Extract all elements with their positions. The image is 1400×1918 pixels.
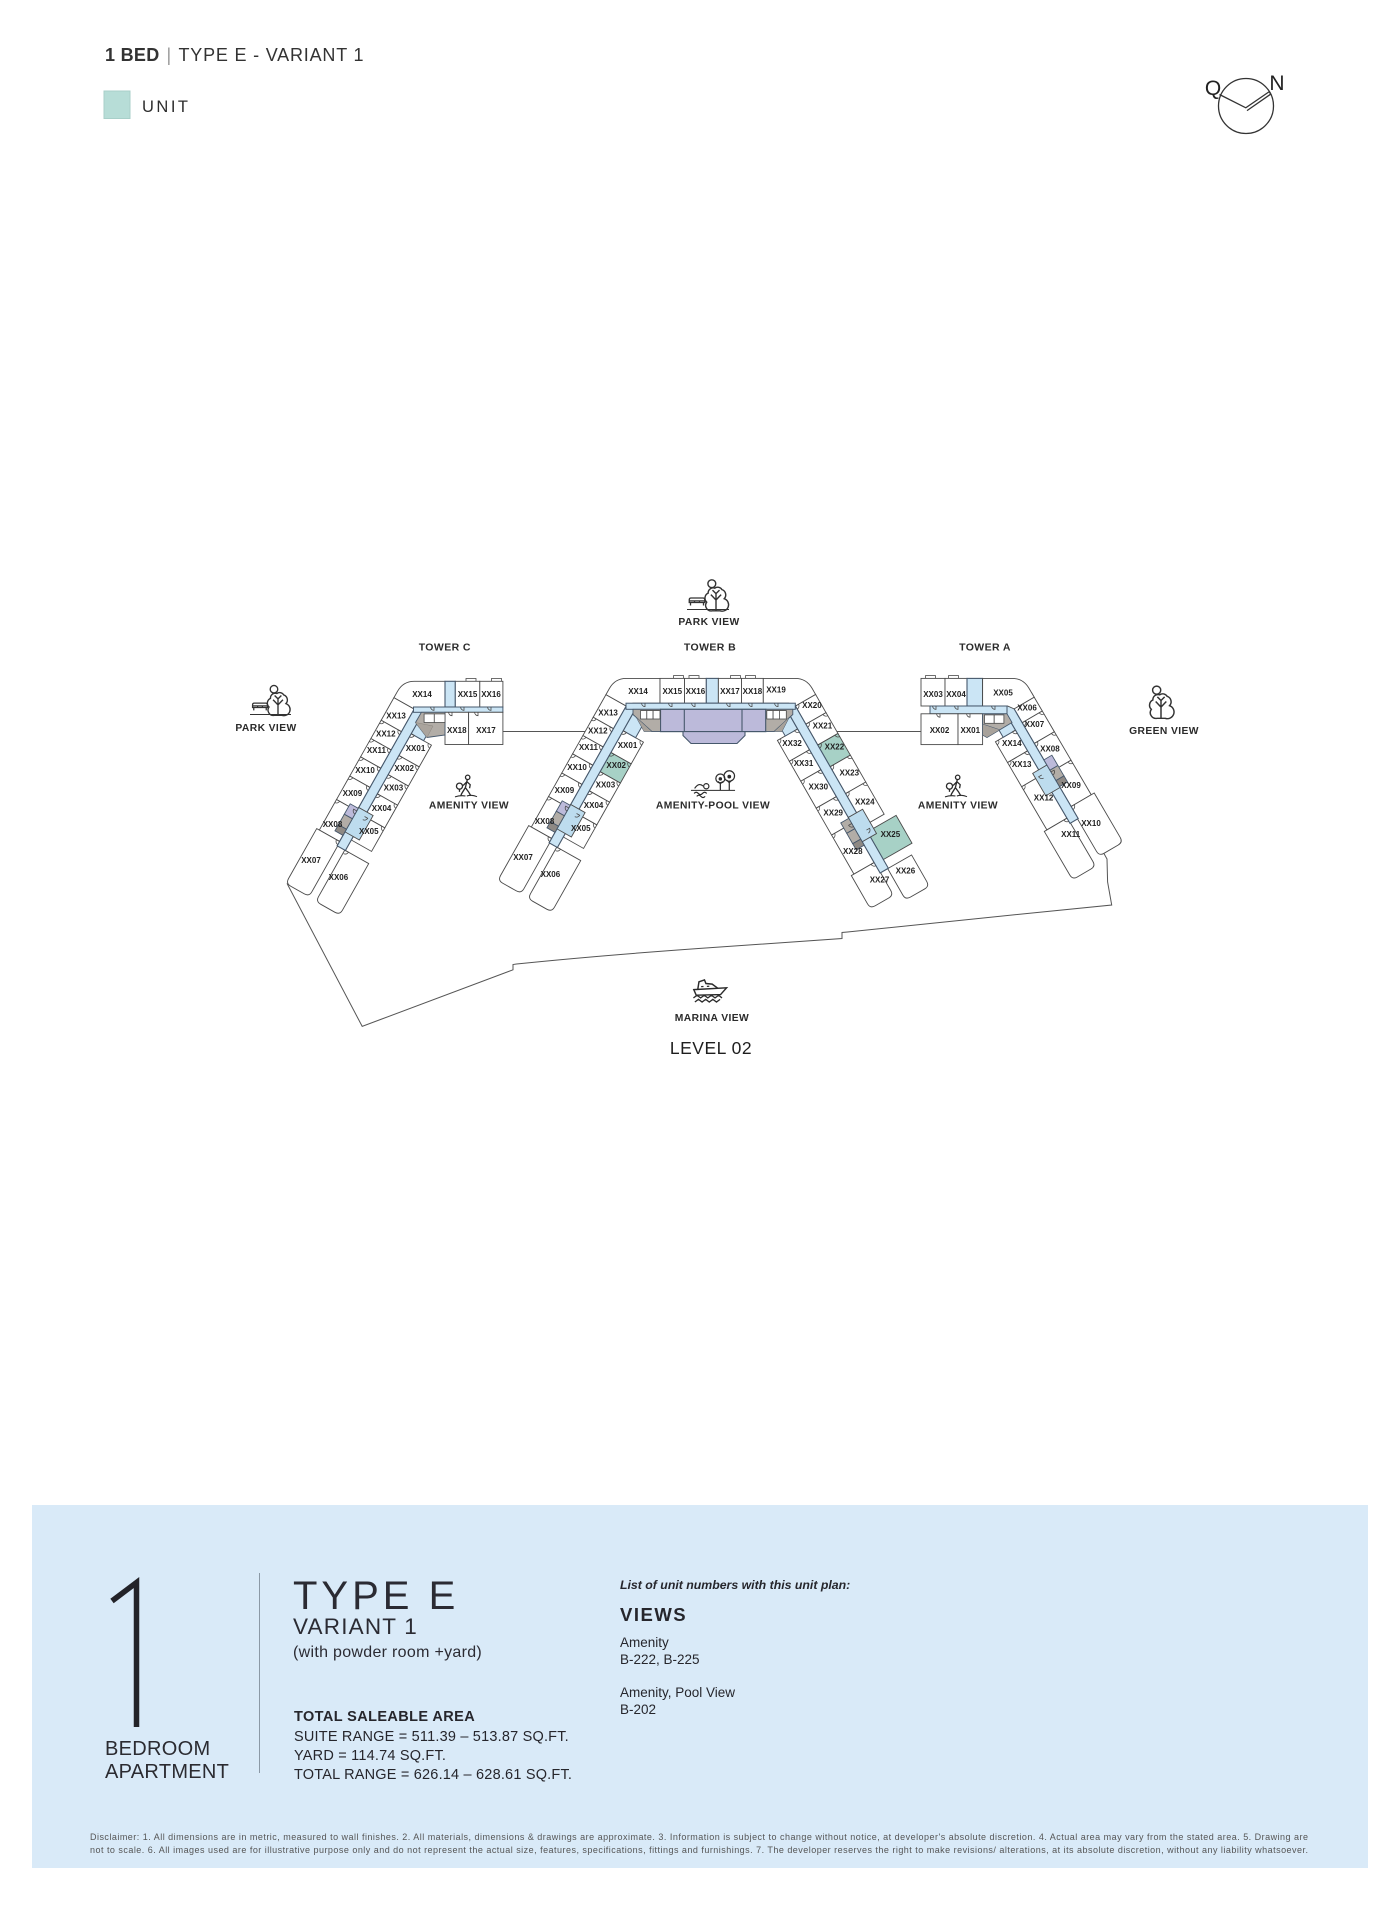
svg-text:XX32: XX32 [782,739,802,748]
svg-text:XX20: XX20 [802,701,822,710]
svg-text:AMENITY VIEW: AMENITY VIEW [918,801,998,812]
svg-text:VARIANT 1: VARIANT 1 [293,1614,418,1639]
svg-text:XX05: XX05 [359,827,379,836]
svg-text:XX06: XX06 [541,870,561,879]
svg-text:XX18: XX18 [743,687,763,696]
svg-text:XX10: XX10 [355,766,375,775]
svg-text:XX11: XX11 [579,743,599,752]
svg-text:XX05: XX05 [993,689,1013,698]
svg-text:PARK VIEW: PARK VIEW [678,617,739,628]
svg-text:TYPE E: TYPE E [293,1574,459,1618]
svg-text:AMENITY VIEW: AMENITY VIEW [429,801,509,812]
svg-text:GREEN VIEW: GREEN VIEW [1129,726,1199,737]
svg-text:XX14: XX14 [412,690,432,699]
svg-text:XX16: XX16 [481,690,501,699]
svg-text:XX05: XX05 [571,824,591,833]
svg-text:XX03: XX03 [596,780,616,789]
svg-text:XX26: XX26 [896,866,916,875]
svg-text:TOWER B: TOWER B [684,642,736,654]
svg-text:Q: Q [1205,77,1221,100]
svg-text:XX24: XX24 [855,798,875,807]
svg-text:TOTAL RANGE = 626.14 – 628.61: TOTAL RANGE = 626.14 – 628.61 SQ.FT. [294,1767,572,1783]
svg-text:XX04: XX04 [584,801,604,810]
svg-text:XX19: XX19 [766,686,786,695]
svg-text:XX06: XX06 [329,873,349,882]
svg-text:AMENITY-POOL VIEW: AMENITY-POOL VIEW [656,801,770,812]
svg-text:VIEWS: VIEWS [620,1604,687,1625]
svg-text:XX03: XX03 [923,690,943,699]
svg-text:XX17: XX17 [476,726,496,735]
svg-text:UNIT: UNIT [142,98,191,116]
svg-text:B-222, B-225: B-222, B-225 [620,1652,700,1667]
svg-text:1 BED|TYPE E - VARIANT 1: 1 BED|TYPE E - VARIANT 1 [105,45,364,65]
svg-text:XX17: XX17 [720,687,740,696]
svg-text:XX25: XX25 [881,830,901,839]
svg-text:XX21: XX21 [813,722,833,731]
svg-text:TOWER A: TOWER A [959,642,1011,654]
svg-text:XX13: XX13 [598,708,618,717]
svg-text:XX01: XX01 [406,744,426,753]
svg-text:XX27: XX27 [870,876,890,885]
svg-text:XX11: XX11 [367,746,387,755]
svg-text:XX06: XX06 [1017,704,1037,713]
svg-text:XX02: XX02 [606,761,626,770]
svg-text:XX22: XX22 [825,742,845,751]
svg-text:XX12: XX12 [588,727,608,736]
svg-text:XX14: XX14 [628,687,648,696]
svg-text:B-202: B-202 [620,1702,656,1717]
svg-text:Amenity, Pool View: Amenity, Pool View [620,1685,735,1700]
svg-text:XX09: XX09 [555,786,575,795]
svg-text:MARINA VIEW: MARINA VIEW [675,1013,749,1024]
svg-text:APARTMENT: APARTMENT [105,1761,229,1783]
svg-text:XX15: XX15 [458,690,478,699]
svg-text:not to scale. 6. All images us: not to scale. 6. All images used are for… [90,1845,1308,1855]
svg-text:XX13: XX13 [1012,760,1032,769]
svg-text:BEDROOM: BEDROOM [105,1738,210,1760]
svg-text:XX04: XX04 [372,804,392,813]
svg-text:XX01: XX01 [961,726,981,735]
svg-text:XX10: XX10 [1081,819,1101,828]
svg-text:XX23: XX23 [840,768,860,777]
svg-text:XX01: XX01 [618,741,638,750]
svg-text:Disclaimer: 1. All dimensions: Disclaimer: 1. All dimensions are in met… [90,1832,1308,1842]
svg-text:XX10: XX10 [567,763,587,772]
svg-text:XX08: XX08 [535,817,555,826]
svg-text:XX15: XX15 [663,687,683,696]
svg-text:TOWER C: TOWER C [419,642,471,654]
svg-text:XX12: XX12 [1034,794,1054,803]
svg-text:XX14: XX14 [1002,739,1022,748]
svg-text:XX09: XX09 [1061,781,1081,790]
svg-text:(with powder room +yard): (with powder room +yard) [293,1644,482,1661]
svg-text:XX28: XX28 [843,847,863,856]
svg-text:TOTAL SALEABLE AREA: TOTAL SALEABLE AREA [294,1709,475,1725]
svg-text:PARK VIEW: PARK VIEW [235,723,296,734]
svg-text:XX04: XX04 [946,690,966,699]
svg-text:XX03: XX03 [384,783,404,792]
svg-text:XX11: XX11 [1061,830,1081,839]
svg-text:N: N [1269,72,1284,95]
svg-text:XX31: XX31 [794,759,814,768]
svg-text:XX08: XX08 [323,820,343,829]
svg-text:List of unit numbers with this: List of unit numbers with this unit plan… [620,1578,850,1592]
svg-text:SUITE RANGE = 511.39 – 513.87: SUITE RANGE = 511.39 – 513.87 SQ.FT. [294,1729,569,1745]
svg-text:LEVEL 02: LEVEL 02 [670,1038,752,1058]
svg-text:XX30: XX30 [809,783,829,792]
svg-text:XX13: XX13 [386,711,406,720]
svg-text:XX02: XX02 [394,764,414,773]
svg-text:XX08: XX08 [1040,745,1060,754]
svg-text:YARD = 114.74 SQ.FT.: YARD = 114.74 SQ.FT. [294,1748,446,1764]
svg-text:XX29: XX29 [823,809,843,818]
svg-text:XX07: XX07 [513,853,533,862]
svg-text:XX07: XX07 [1025,720,1045,729]
svg-text:XX12: XX12 [376,730,396,739]
svg-text:XX18: XX18 [447,726,467,735]
svg-text:XX07: XX07 [301,856,321,865]
svg-text:XX16: XX16 [686,687,706,696]
svg-text:XX02: XX02 [930,726,950,735]
svg-text:XX09: XX09 [343,789,363,798]
svg-text:Amenity: Amenity [620,1635,669,1650]
